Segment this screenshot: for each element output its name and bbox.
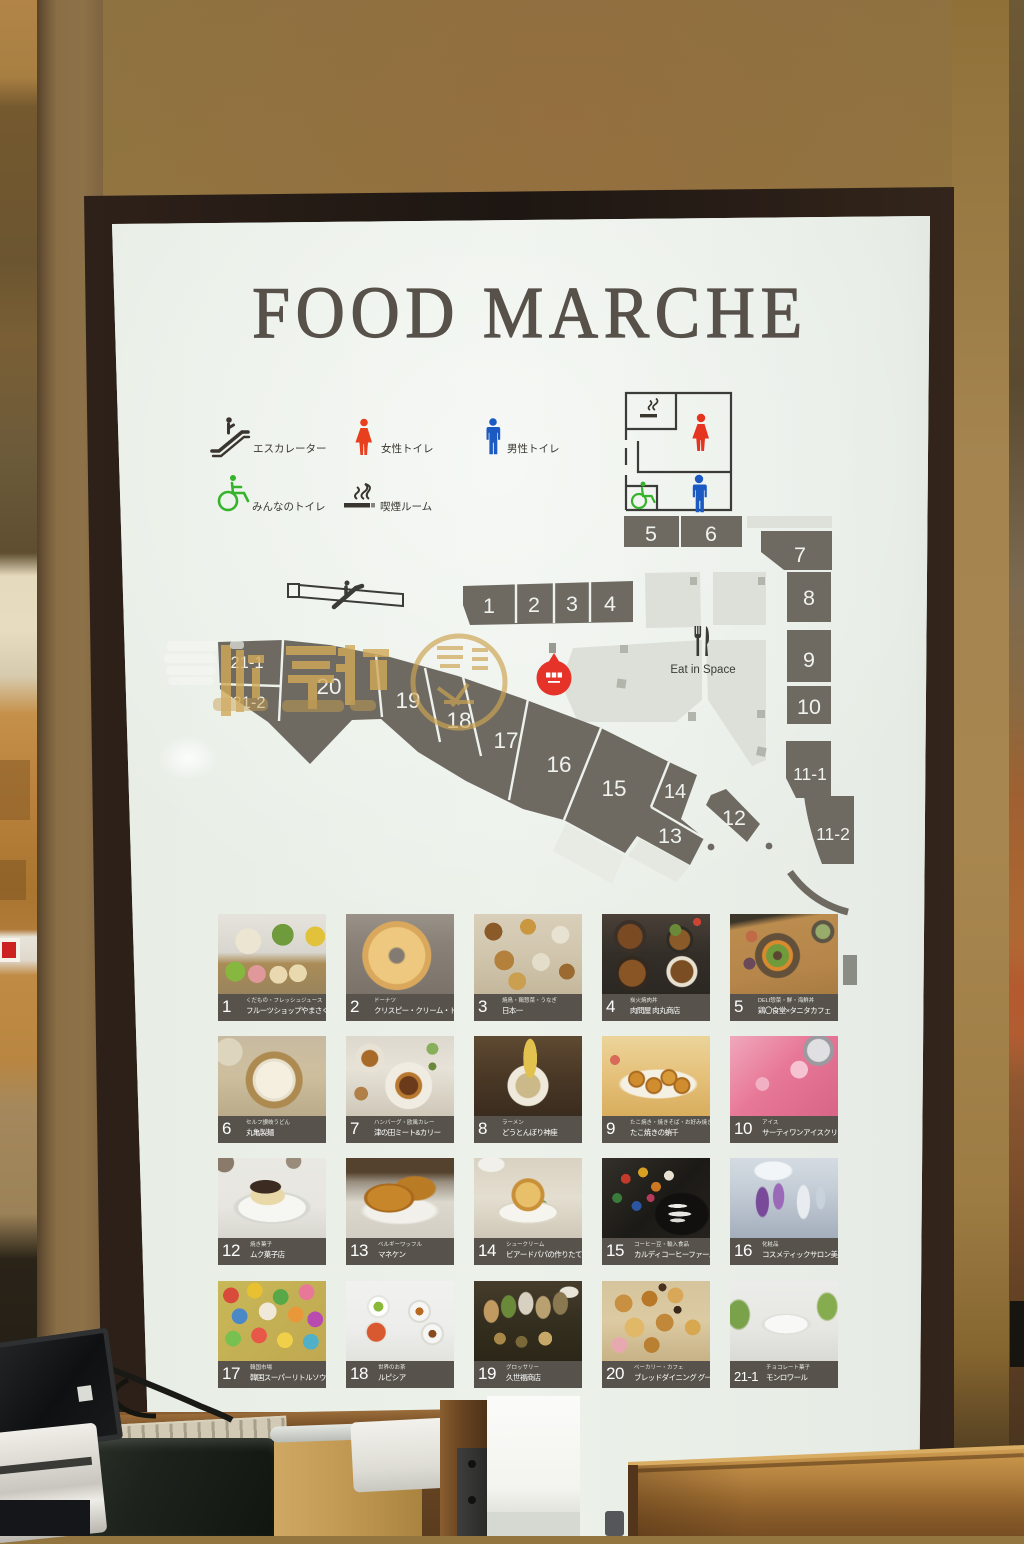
svg-text:6: 6: [705, 522, 717, 546]
svg-text:10: 10: [797, 695, 821, 719]
svg-text:7: 7: [794, 543, 806, 567]
svg-text:14: 14: [664, 781, 686, 803]
svg-text:8: 8: [803, 586, 815, 610]
svg-text:男性トイレ: 男性トイレ: [507, 442, 560, 455]
svg-text:喫煙ルーム: 喫煙ルーム: [380, 501, 432, 513]
svg-text:みんなのトイレ: みんなのトイレ: [252, 501, 326, 513]
svg-text:3: 3: [566, 592, 578, 616]
svg-text:女性トイレ: 女性トイレ: [381, 442, 434, 455]
svg-text:17: 17: [493, 728, 518, 753]
svg-text:Eat in Space: Eat in Space: [670, 664, 735, 676]
svg-text:12: 12: [722, 806, 746, 830]
svg-text:2: 2: [528, 593, 540, 617]
svg-text:1: 1: [483, 594, 495, 618]
svg-text:11-2: 11-2: [816, 824, 850, 844]
svg-text:11-1: 11-1: [793, 764, 827, 784]
svg-text:15: 15: [601, 776, 626, 801]
svg-text:13: 13: [658, 824, 682, 848]
svg-text:エスカレーター: エスカレーター: [253, 443, 327, 455]
svg-text:5: 5: [645, 522, 657, 546]
svg-text:4: 4: [604, 592, 616, 616]
svg-text:9: 9: [803, 648, 815, 672]
svg-text:16: 16: [546, 752, 571, 777]
